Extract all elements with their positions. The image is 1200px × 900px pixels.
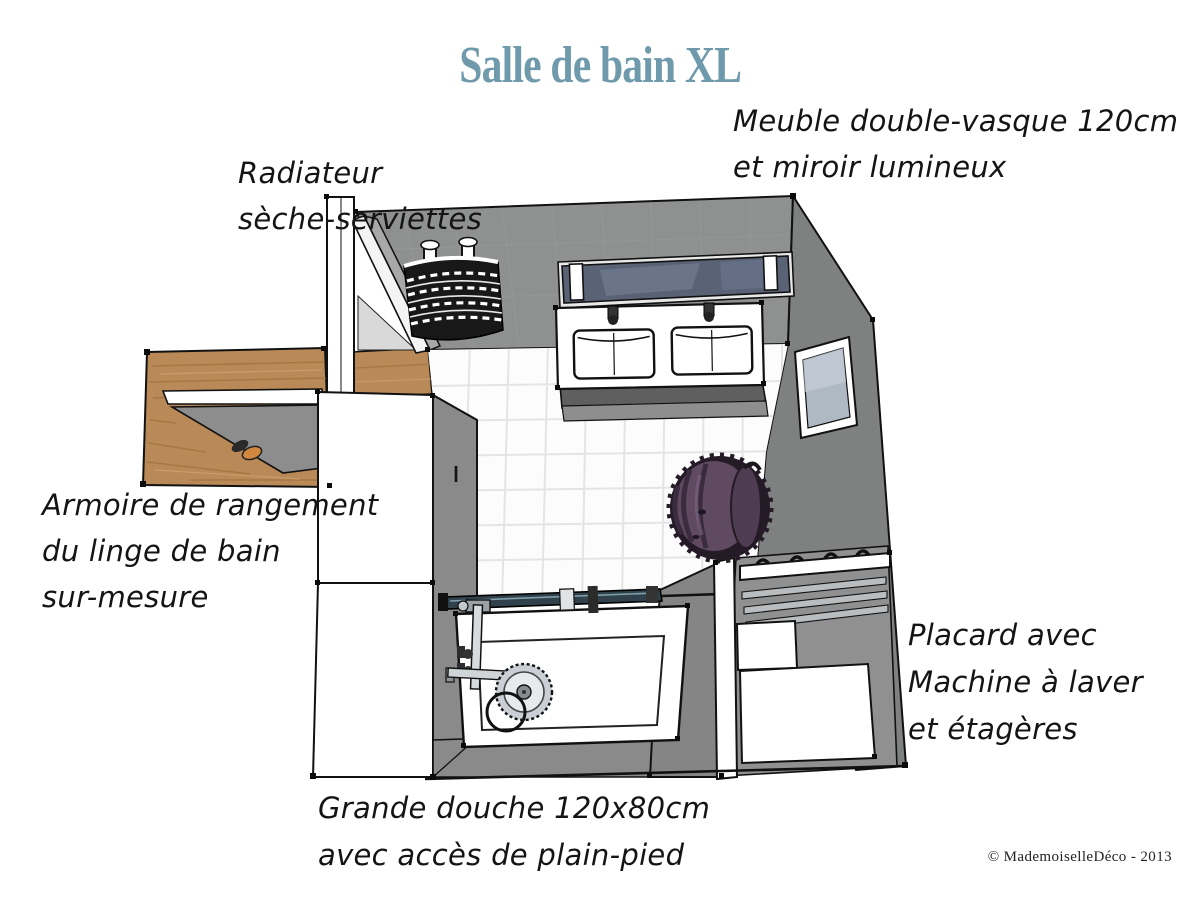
annotation-placard: Placard avec Machine à laver et étagères	[908, 612, 1143, 753]
annotation-placard-line1: Placard avec	[908, 612, 1143, 659]
faucet-right	[704, 303, 714, 322]
wood-doorway-strip	[352, 348, 432, 397]
double-sink-icon	[556, 303, 768, 421]
placard-post	[714, 558, 737, 779]
mirror-light-left	[569, 264, 583, 300]
pouf-icon	[670, 456, 770, 560]
window-icon	[795, 337, 857, 438]
annotation-placard-line2: Machine à laver	[908, 659, 1143, 706]
basin-right	[672, 326, 753, 374]
placard-closet	[714, 546, 897, 779]
basin-left	[574, 329, 655, 378]
annotation-shower-line2: avec accès de plain-pied	[318, 832, 710, 879]
annotation-armoire: Armoire de rangement du linge de bain su…	[42, 482, 378, 620]
door-sill	[163, 389, 322, 404]
placard-shelf-block	[737, 621, 797, 670]
page-title: Salle de bain XL	[0, 36, 1200, 95]
annotation-radiator-line1: Radiateur	[238, 150, 482, 196]
annotation-armoire-line1: Armoire de rangement	[42, 482, 378, 528]
annotation-vanity-line2: et miroir lumineux	[733, 144, 1178, 190]
copyright-notice: © MademoiselleDéco - 2013	[988, 849, 1172, 866]
annotation-radiator: Radiateur sèche-serviettes	[238, 150, 482, 242]
annotation-placard-line3: et étagères	[908, 706, 1143, 753]
annotation-radiator-line2: sèche-serviettes	[238, 196, 482, 242]
annotation-vanity-line1: Meuble double-vasque 120cm	[733, 98, 1178, 144]
mirror-light-right	[763, 256, 777, 290]
annotation-armoire-line3: sur-mesure	[42, 574, 378, 620]
bathroom-plan-page: Salle de bain XL Meuble double-vasque 12…	[0, 0, 1200, 900]
washing-machine-block	[740, 664, 875, 763]
annotation-armoire-line2: du linge de bain	[42, 528, 378, 574]
annotation-shower: Grande douche 120x80cm avec accès de pla…	[318, 785, 710, 879]
annotation-shower-line1: Grande douche 120x80cm	[318, 785, 710, 832]
faucet-left	[608, 306, 618, 325]
annotation-vanity: Meuble double-vasque 120cm et miroir lum…	[733, 98, 1178, 190]
